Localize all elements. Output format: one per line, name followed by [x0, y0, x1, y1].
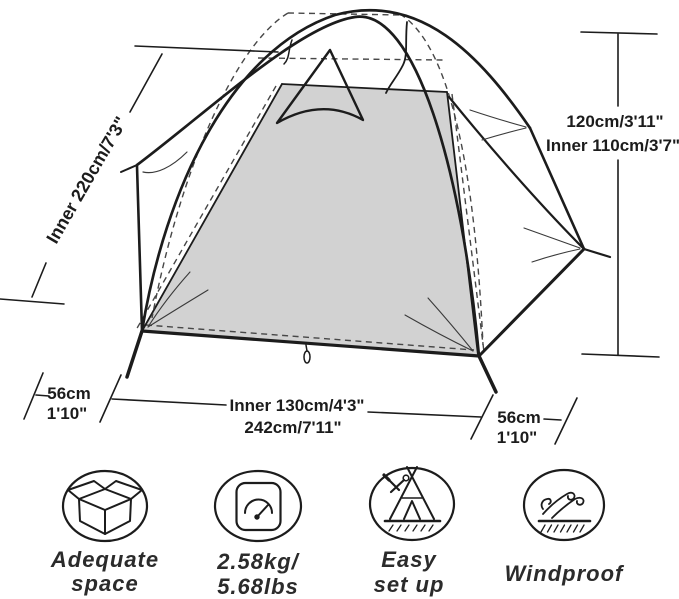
- feature-label-line2: space: [71, 571, 138, 596]
- left-depth-ft-label: 1'10": [47, 404, 87, 423]
- right-stake: [479, 356, 496, 392]
- tent-setup-glyph: [384, 467, 440, 531]
- dimension-line: [32, 263, 46, 297]
- top-fold-left: [284, 40, 292, 64]
- inner-height-label: Inner 110cm/3'7": [546, 136, 679, 155]
- weight-scale-glyph: [237, 483, 281, 530]
- zipper-pull-cord: [306, 345, 307, 351]
- zipper-pull-loop: [304, 351, 310, 363]
- tick-line: [582, 354, 659, 357]
- dimension-line: [368, 412, 481, 417]
- feature-label-line2: set up: [374, 572, 445, 597]
- right-depth-ft-label: 1'10": [497, 428, 537, 447]
- tick-line: [0, 299, 64, 304]
- inner-tent-dashed-mid: [258, 58, 443, 60]
- tent-front-panel: [142, 84, 478, 355]
- left-front-edge: [137, 166, 142, 331]
- feature-adequate-space: Adequate space: [50, 471, 159, 596]
- left-vestibule-tip: [121, 165, 137, 172]
- tick-line: [581, 32, 657, 34]
- dimension-height: 120cm/3'11" Inner 110cm/3'7": [546, 32, 679, 357]
- feature-label-line1: Easy: [381, 547, 437, 572]
- slash-tick: [555, 398, 577, 444]
- product-infographic: Inner 220cm/7'3" 120cm/3'11" Inner 110cm…: [0, 0, 679, 599]
- dimension-line: [544, 419, 561, 420]
- fly-right-to-corner: [479, 249, 584, 356]
- crease-line: [482, 128, 526, 140]
- feature-label-line1: Windproof: [505, 561, 625, 586]
- height-label: 120cm/3'11": [566, 112, 663, 131]
- feature-label-line1: Adequate: [50, 547, 159, 572]
- feature-label-line1: 2.58kg/: [216, 549, 300, 574]
- feature-easy-setup: Easy set up: [370, 467, 454, 597]
- right-depth-cm-label: 56cm: [497, 408, 540, 427]
- inner-width-label: Inner 130cm/4'3": [230, 396, 365, 415]
- left-stake: [127, 331, 142, 377]
- right-tip-tail: [584, 249, 610, 257]
- feature-windproof: Windproof: [505, 470, 625, 586]
- fly-right-lower-edge: [449, 97, 584, 249]
- dimension-line: [130, 54, 162, 112]
- tick-line: [135, 46, 278, 52]
- tent-drawing: [121, 10, 610, 392]
- feature-weight: 2.58kg/ 5.68lbs: [215, 471, 301, 599]
- windproof-icon: [524, 470, 604, 540]
- slash-tick: [100, 375, 121, 422]
- open-box-glyph: [68, 481, 142, 534]
- outer-width-label: 242cm/7'11": [244, 418, 341, 437]
- dimension-line: [112, 399, 226, 405]
- slant-dimension-label: Inner 220cm/7'3": [42, 113, 131, 247]
- tent-dimensions-diagram: Inner 220cm/7'3" 120cm/3'11" Inner 110cm…: [0, 0, 679, 599]
- left-depth-cm-label: 56cm: [47, 384, 90, 403]
- feature-label-line2: 5.68lbs: [217, 574, 299, 599]
- tent-setup-icon: [370, 468, 454, 540]
- wind-gusts-glyph: [539, 493, 590, 532]
